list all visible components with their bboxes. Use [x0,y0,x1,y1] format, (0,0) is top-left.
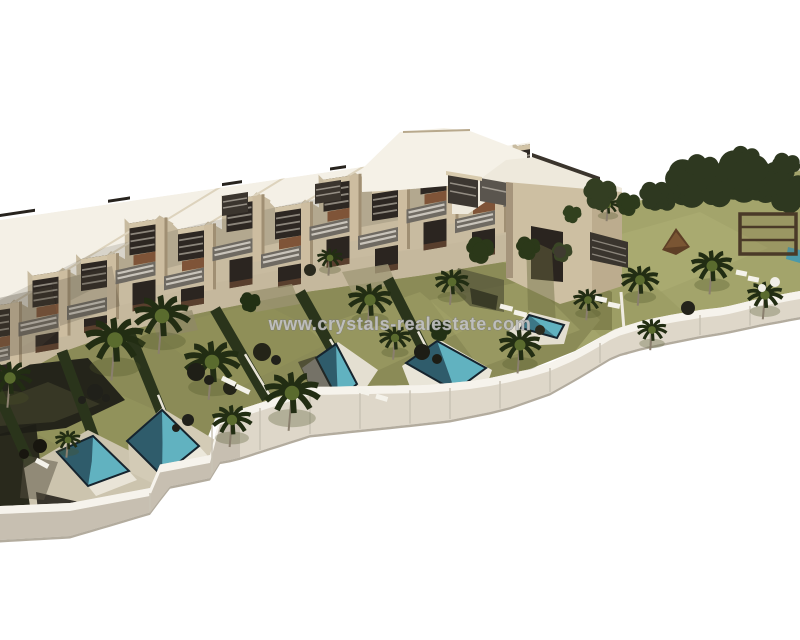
svg-text:www.crystals-realestate.com: www.crystals-realestate.com [268,314,532,334]
